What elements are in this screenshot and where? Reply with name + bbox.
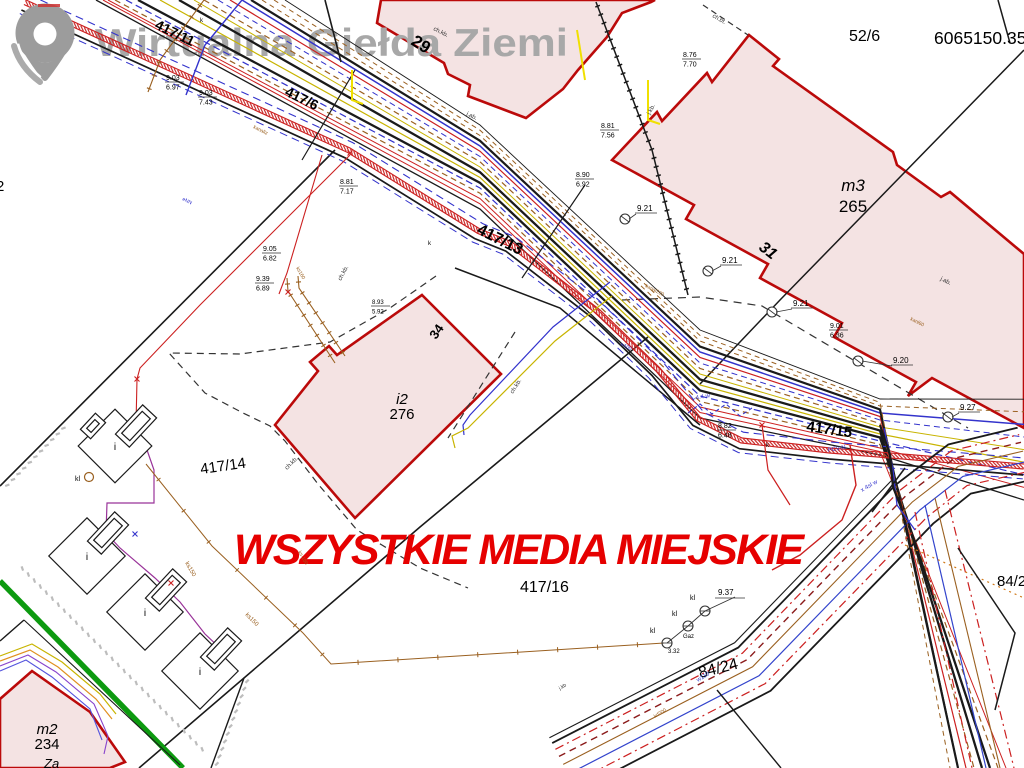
svg-text:6.48: 6.48	[718, 433, 732, 440]
svg-text:7.43: 7.43	[199, 100, 213, 107]
svg-text:9.27: 9.27	[960, 403, 976, 412]
svg-text:kl: kl	[75, 476, 81, 483]
svg-text:7.56: 7.56	[601, 133, 615, 140]
svg-text:2: 2	[0, 178, 4, 195]
svg-text:6.97: 6.97	[166, 85, 180, 92]
svg-text:i: i	[114, 442, 116, 453]
svg-text:6.36: 6.36	[830, 333, 844, 340]
svg-text:7.70: 7.70	[683, 62, 697, 69]
svg-text:kl: kl	[672, 611, 678, 618]
svg-text:234: 234	[34, 736, 59, 753]
svg-text:9.05: 9.05	[263, 246, 277, 253]
svg-text:265: 265	[839, 197, 867, 216]
svg-text:6065150.35: 6065150.35	[934, 28, 1024, 48]
svg-text:3.32: 3.32	[668, 649, 680, 655]
svg-text:6.92: 6.92	[576, 182, 590, 189]
svg-text:Gaz: Gaz	[683, 634, 694, 640]
svg-text:8.76: 8.76	[683, 52, 697, 59]
svg-text:9.01: 9.01	[830, 323, 844, 330]
svg-text:9.03: 9.03	[199, 90, 213, 97]
svg-text:9.21: 9.21	[793, 299, 809, 308]
svg-text:9.37: 9.37	[718, 588, 734, 597]
svg-text:84/2: 84/2	[997, 573, 1024, 590]
svg-text:9.39: 9.39	[256, 276, 270, 283]
svg-text:276: 276	[389, 406, 414, 423]
svg-text:8.82: 8.82	[718, 423, 732, 430]
svg-text:9.21: 9.21	[637, 204, 653, 213]
svg-text:WSZYSTKIE MEDIA MIEJSKIE: WSZYSTKIE MEDIA MIEJSKIE	[234, 526, 805, 574]
svg-text:kl: kl	[650, 628, 656, 635]
svg-text:i: i	[144, 608, 146, 619]
svg-text:kl: kl	[690, 595, 696, 602]
svg-text:8.90: 8.90	[576, 172, 590, 179]
svg-text:417/16: 417/16	[520, 579, 569, 596]
svg-text:m3: m3	[841, 176, 865, 195]
svg-text:6.82: 6.82	[263, 256, 277, 263]
svg-text:6.89: 6.89	[256, 286, 270, 293]
svg-text:Za: Za	[43, 756, 59, 768]
svg-text:9.20: 9.20	[893, 356, 909, 365]
svg-text:5.92: 5.92	[372, 310, 384, 316]
svg-text:9.21: 9.21	[722, 256, 738, 265]
svg-text:8.93: 8.93	[372, 300, 384, 306]
svg-text:52/6: 52/6	[849, 28, 880, 45]
svg-text:9.03: 9.03	[166, 75, 180, 82]
svg-text:8.81: 8.81	[601, 123, 615, 130]
svg-text:i: i	[86, 552, 88, 563]
svg-text:8.81: 8.81	[340, 179, 354, 186]
svg-text:i: i	[199, 667, 201, 678]
svg-text:7.17: 7.17	[340, 189, 354, 196]
